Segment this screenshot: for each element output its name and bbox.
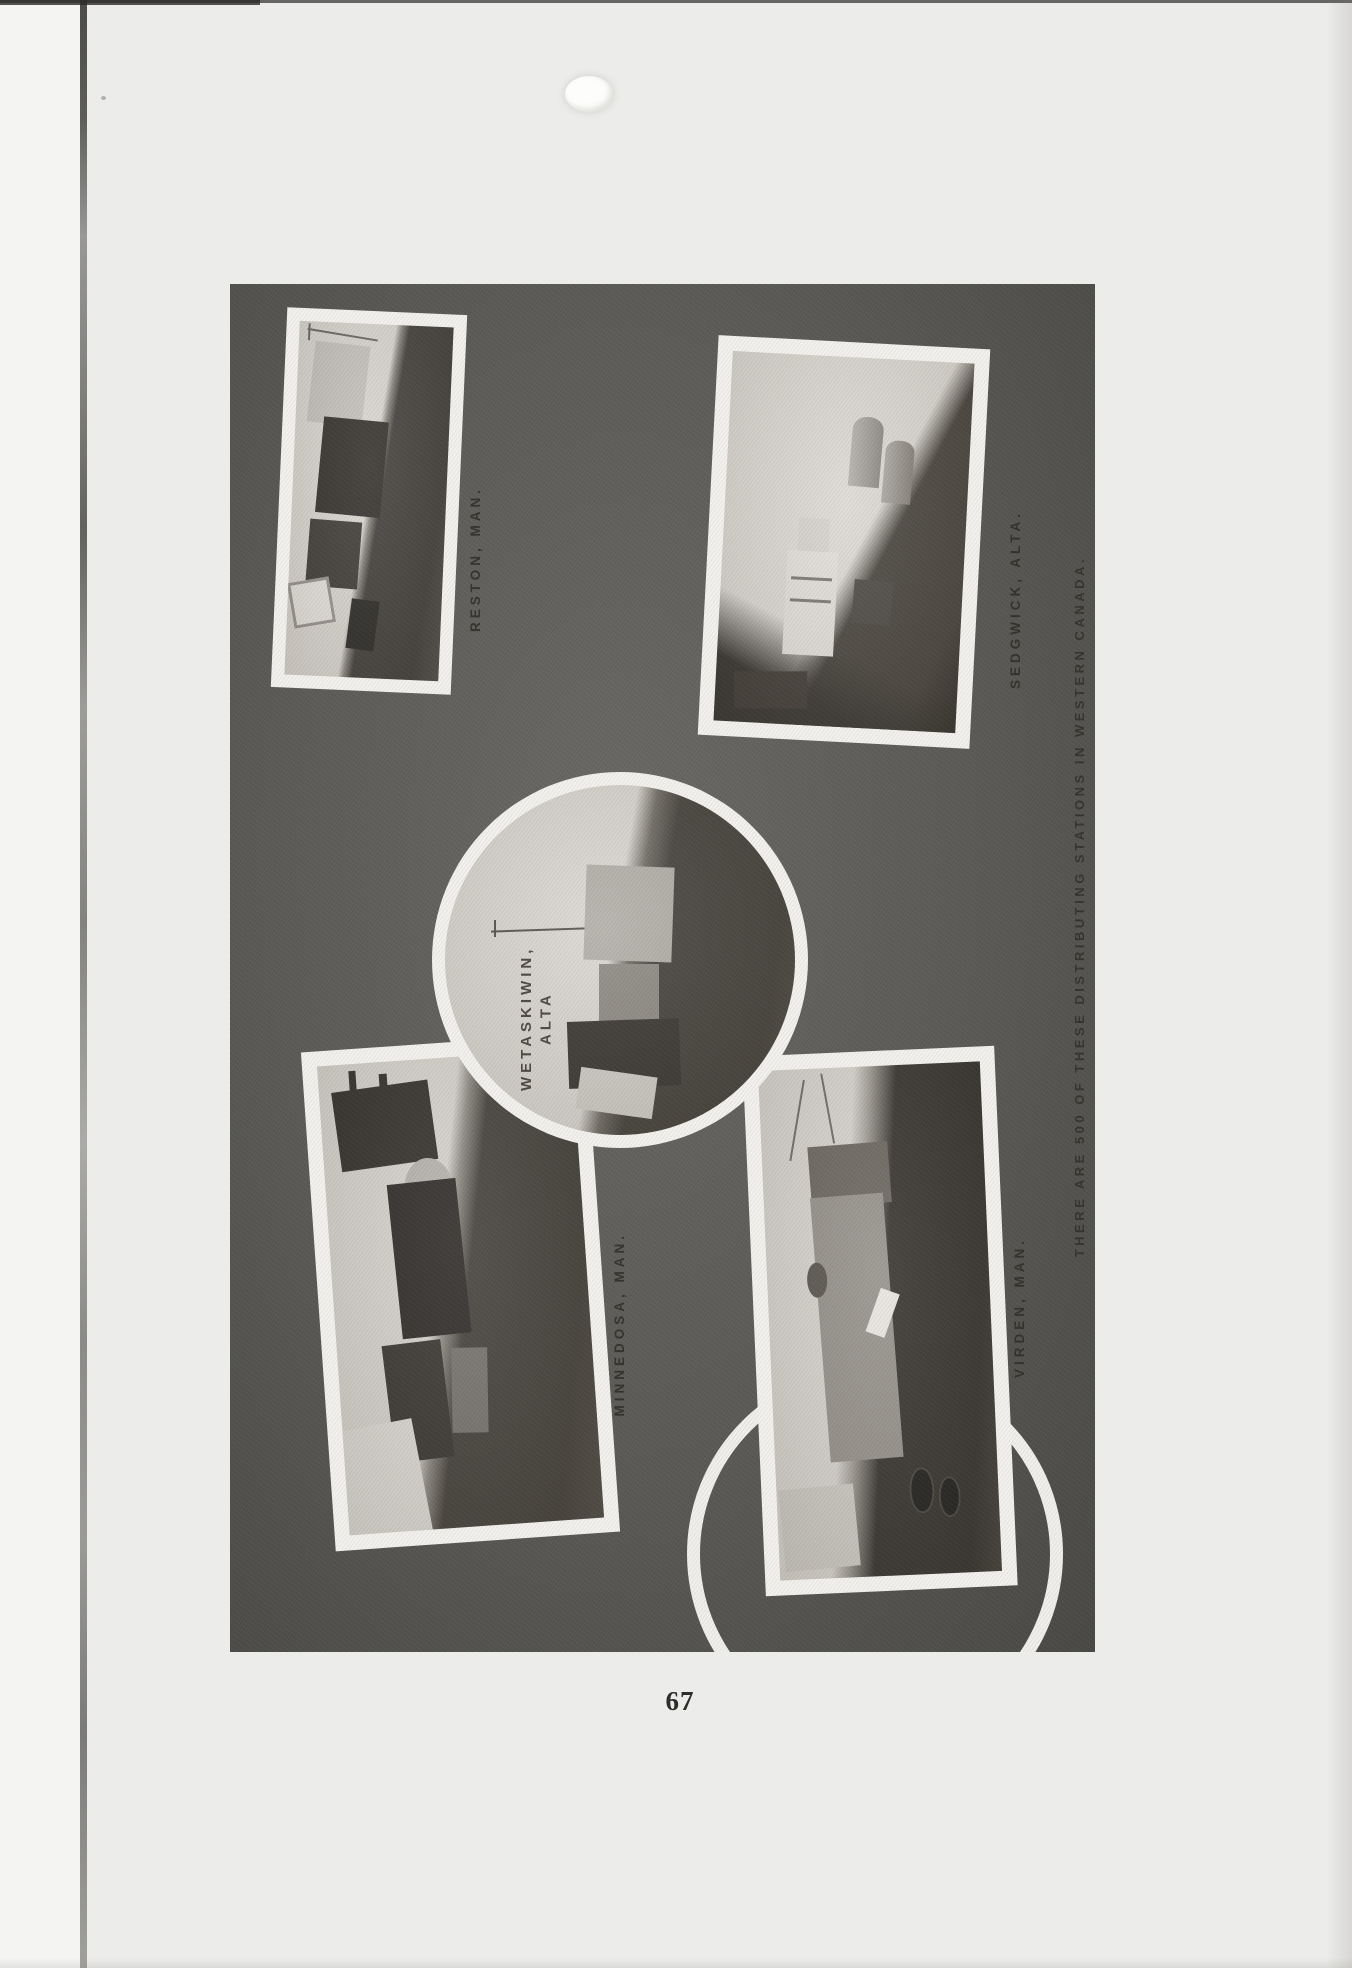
photo-shape — [403, 1156, 456, 1220]
page-right-edge-shade — [1326, 0, 1352, 1968]
photo-shape — [791, 576, 832, 581]
page-bottom-edge-shade — [0, 1958, 1352, 1968]
photo-shape — [866, 1288, 900, 1338]
scan-top-edge-accent — [0, 0, 260, 5]
photo-shape — [797, 517, 830, 556]
book-gutter-shadow — [80, 0, 87, 1968]
photo-shape — [566, 1018, 680, 1088]
photo-shape — [315, 416, 389, 517]
photo-shape — [881, 440, 915, 505]
photo-shape — [851, 579, 893, 627]
photo-shape — [345, 598, 379, 651]
scan-speck — [101, 96, 106, 100]
photo-shape — [379, 1073, 388, 1097]
photo-shape — [494, 920, 496, 938]
photo-shape — [331, 1418, 434, 1535]
collage-caption: THERE ARE 500 OF THESE DISTRIBUTING STAT… — [1072, 556, 1088, 1257]
photo-shape — [583, 864, 674, 961]
photo-shape — [451, 1348, 488, 1433]
photo-shape — [807, 1141, 891, 1208]
photo-collage-plate: RESTON, MAN. SEDGWICK, ALTA. MINNEDOSA, … — [230, 284, 1095, 1652]
wetaskiwin-photo-image: WETASKIWIN,ALTA — [445, 785, 795, 1135]
photo-shape — [735, 672, 808, 709]
photo-shape — [820, 1074, 835, 1145]
photo-shape — [909, 1467, 935, 1514]
reston-photo-image — [284, 321, 453, 681]
sedgwick-photo-image — [713, 351, 974, 733]
photo-shape — [287, 577, 336, 629]
photo-shape — [779, 1484, 862, 1572]
photo-shape — [331, 1079, 438, 1172]
photo-label-wetaskiwin: WETASKIWIN,ALTA — [517, 933, 556, 1103]
photo-label-virden: VIRDEN, MAN. — [1012, 1237, 1028, 1378]
photo-shape — [382, 1339, 455, 1463]
photo-virden — [742, 1046, 1017, 1596]
photo-label-wetaskiwin-line2: ALTA — [538, 991, 555, 1045]
photo-label-minnedosa: MINNEDOSA, MAN. — [612, 1232, 628, 1417]
virden-photo-image — [758, 1061, 1002, 1580]
photo-shape — [575, 1067, 657, 1119]
photo-shape — [790, 598, 831, 603]
photo-label-reston: RESTON, MAN. — [468, 486, 484, 632]
page-number: 67 — [652, 1686, 708, 1717]
photo-reston — [271, 307, 467, 694]
photo-shape — [782, 550, 838, 656]
photo-sedgwick — [698, 335, 991, 749]
photo-shape — [307, 327, 377, 341]
photo-shape — [806, 1262, 828, 1299]
photo-shape — [848, 416, 885, 489]
book-page: { "page": { "number": "67" }, "collage":… — [0, 0, 1352, 1968]
photo-shape — [810, 1192, 904, 1462]
photo-shape — [938, 1476, 962, 1518]
photo-shape — [348, 1071, 357, 1095]
photo-label-wetaskiwin-line1: WETASKIWIN, — [518, 945, 535, 1090]
photo-shape — [308, 323, 311, 341]
page-left-margin — [0, 0, 80, 1968]
photo-shape — [306, 341, 370, 428]
photo-shape — [306, 519, 363, 590]
photo-shape — [490, 927, 585, 932]
scan-glare-spot — [565, 76, 613, 112]
photo-shape — [789, 1080, 804, 1161]
photo-label-sedgwick: SEDGWICK, ALTA. — [1008, 510, 1024, 689]
photo-shape — [386, 1178, 471, 1339]
photo-shape — [599, 964, 659, 1024]
photo-wetaskiwin-circle: WETASKIWIN,ALTA — [432, 772, 808, 1148]
